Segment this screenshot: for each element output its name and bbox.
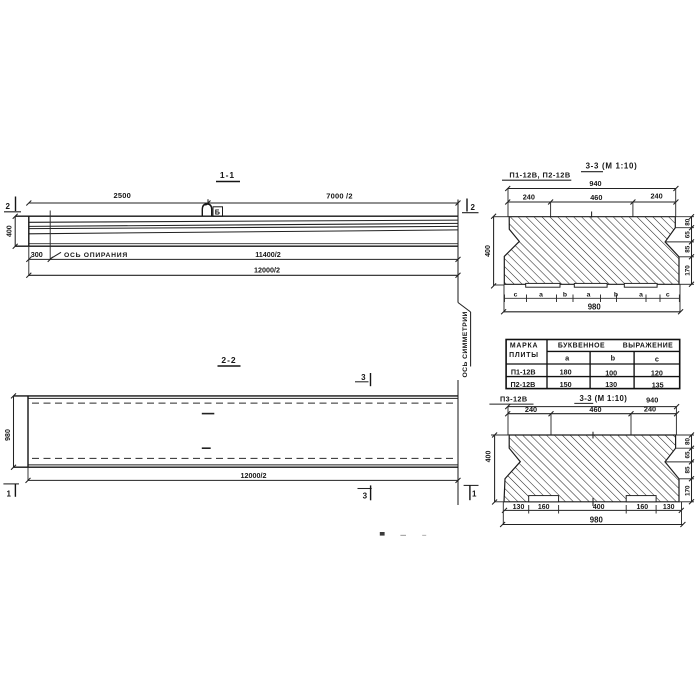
svg-text:c: c	[655, 355, 659, 364]
svg-text:240: 240	[523, 193, 535, 202]
svg-text:a: a	[587, 291, 591, 298]
svg-text:c: c	[666, 291, 670, 298]
svg-text:460: 460	[589, 405, 601, 414]
svg-text:1: 1	[7, 490, 12, 499]
svg-text:b: b	[614, 291, 618, 298]
svg-text:Б: Б	[215, 208, 220, 217]
svg-text:400: 400	[485, 245, 492, 257]
svg-text:2-2: 2-2	[221, 355, 236, 365]
svg-text:130: 130	[605, 380, 617, 389]
svg-text:3: 3	[361, 373, 366, 382]
svg-text:b: b	[611, 354, 616, 363]
svg-text:ВЫРАЖЕНИЕ: ВЫРАЖЕНИЕ	[623, 343, 674, 350]
svg-text:12000/2: 12000/2	[254, 265, 280, 274]
svg-text:3-3 (М 1:10): 3-3 (М 1:10)	[586, 162, 638, 171]
svg-text:ОСЬ ОПИРАНИЯ: ОСЬ ОПИРАНИЯ	[64, 252, 128, 259]
svg-text:980: 980	[588, 303, 602, 312]
svg-text:300: 300	[31, 250, 43, 259]
svg-text:b: b	[563, 291, 567, 298]
svg-text:980: 980	[5, 429, 12, 441]
svg-text:ОСЬ СИММЕТРИИ: ОСЬ СИММЕТРИИ	[462, 311, 469, 377]
svg-text:400: 400	[486, 451, 493, 463]
svg-text:3: 3	[363, 491, 368, 500]
svg-text:940: 940	[589, 179, 601, 188]
svg-text:130: 130	[513, 504, 525, 511]
svg-text:80: 80	[685, 218, 692, 226]
svg-text:170: 170	[685, 265, 692, 276]
svg-text:940: 940	[646, 396, 658, 405]
svg-text:3-3 (М 1:10): 3-3 (М 1:10)	[580, 394, 628, 403]
svg-text:a: a	[639, 291, 643, 298]
svg-text:160: 160	[538, 504, 550, 511]
svg-text:БУКВЕННОЕ: БУКВЕННОЕ	[558, 343, 605, 350]
svg-text:П3-12В: П3-12В	[500, 395, 528, 404]
svg-text:1-1: 1-1	[220, 170, 235, 180]
svg-text:2: 2	[471, 203, 476, 212]
svg-text:160: 160	[636, 504, 648, 511]
svg-text:П1-12В, П2-12В: П1-12В, П2-12В	[509, 170, 570, 179]
svg-text:65: 65	[685, 451, 692, 459]
svg-text:240: 240	[525, 405, 537, 414]
svg-text:130: 130	[663, 504, 675, 511]
svg-text:135: 135	[652, 380, 664, 389]
svg-text:460: 460	[590, 193, 602, 202]
svg-text:12000/2: 12000/2	[241, 471, 267, 480]
svg-text:80: 80	[685, 438, 692, 446]
svg-text:65: 65	[685, 231, 692, 239]
svg-text:180: 180	[560, 368, 572, 377]
svg-text:170: 170	[685, 485, 692, 496]
svg-text:11400/2: 11400/2	[255, 250, 281, 259]
svg-text:100: 100	[605, 368, 617, 377]
svg-text:120: 120	[651, 368, 663, 377]
svg-text:400: 400	[7, 225, 14, 237]
svg-text:2500: 2500	[114, 191, 132, 200]
svg-text:240: 240	[651, 191, 663, 200]
svg-text:150: 150	[560, 380, 572, 389]
svg-text:c: c	[514, 291, 518, 298]
svg-text:П2-12В: П2-12В	[511, 380, 536, 389]
svg-text:2: 2	[6, 202, 11, 211]
svg-text:85: 85	[685, 466, 692, 474]
svg-text:240: 240	[644, 404, 656, 413]
svg-text:1: 1	[472, 489, 477, 498]
svg-text:400: 400	[593, 504, 605, 511]
svg-text:ПЛИТЫ: ПЛИТЫ	[509, 352, 539, 359]
svg-text:85: 85	[685, 245, 692, 253]
svg-text:МАРКА: МАРКА	[510, 343, 539, 350]
svg-text:П1-12В: П1-12В	[511, 368, 536, 377]
svg-text:980: 980	[590, 516, 604, 525]
svg-text:a: a	[539, 291, 543, 298]
svg-text:7000 /2: 7000 /2	[326, 192, 352, 201]
